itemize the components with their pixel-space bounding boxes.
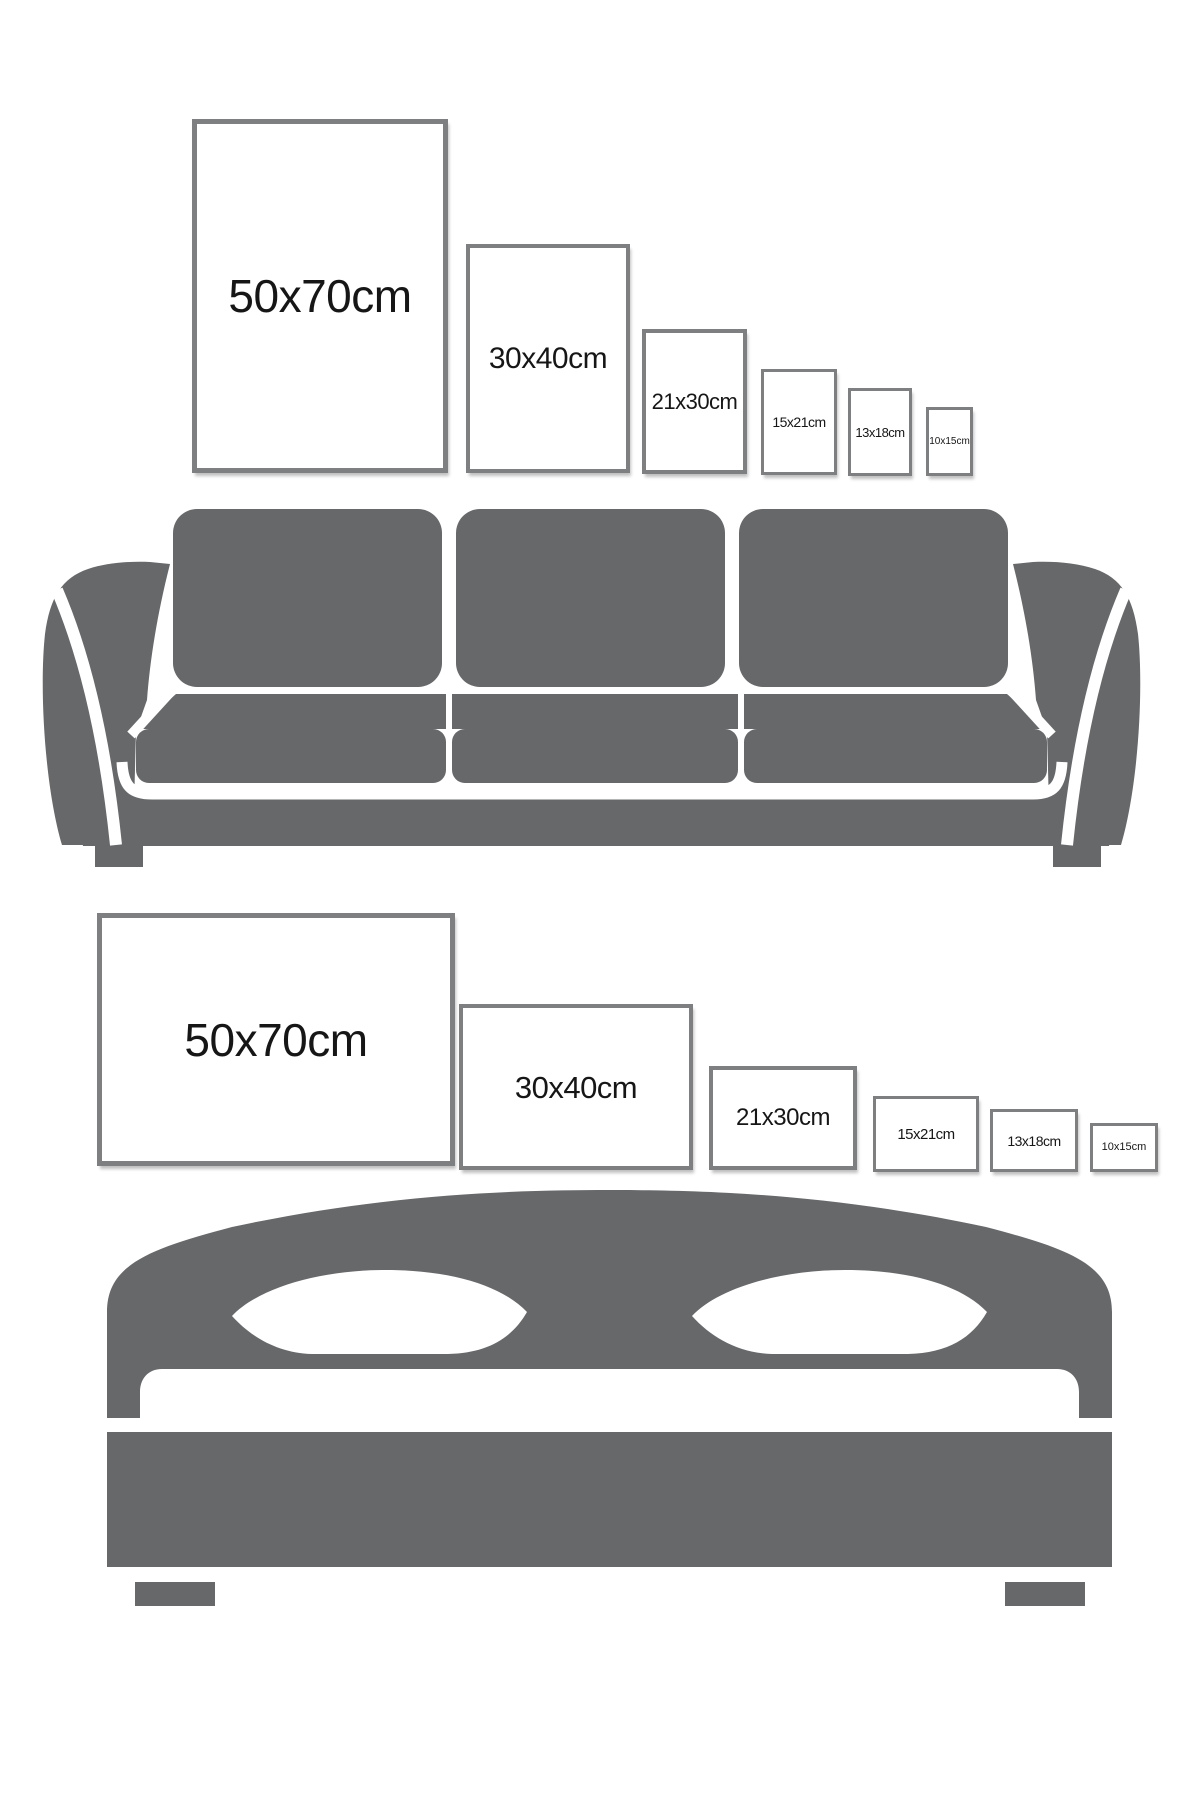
bed-mattress [107, 1432, 1112, 1567]
sofa-left-leg [95, 846, 143, 867]
sofa-seat-cushion [136, 729, 446, 783]
sofa-seat-deck [452, 694, 738, 729]
sofa-seat-cushion [452, 729, 738, 783]
bed-right-leg [1005, 1582, 1085, 1606]
sofa-back-cushion [173, 509, 442, 687]
sofa-seat-deck [744, 694, 1047, 729]
bed-silhouette [107, 1190, 1112, 1606]
sofa-right-leg [1053, 846, 1101, 867]
sofa-back-cushion [739, 509, 1008, 687]
sofa-silhouette [43, 509, 1141, 867]
bed-left-leg [135, 1582, 215, 1606]
bed-headboard [107, 1190, 1112, 1418]
sofa-back-cushion [456, 509, 725, 687]
furniture-silhouettes [0, 0, 1200, 1800]
size-guide-canvas: 50x70cm 30x40cm 21x30cm 15x21cm 13x18cm … [0, 0, 1200, 1800]
sofa-seat-cushion [744, 729, 1047, 783]
sofa-seat-deck [136, 694, 446, 729]
